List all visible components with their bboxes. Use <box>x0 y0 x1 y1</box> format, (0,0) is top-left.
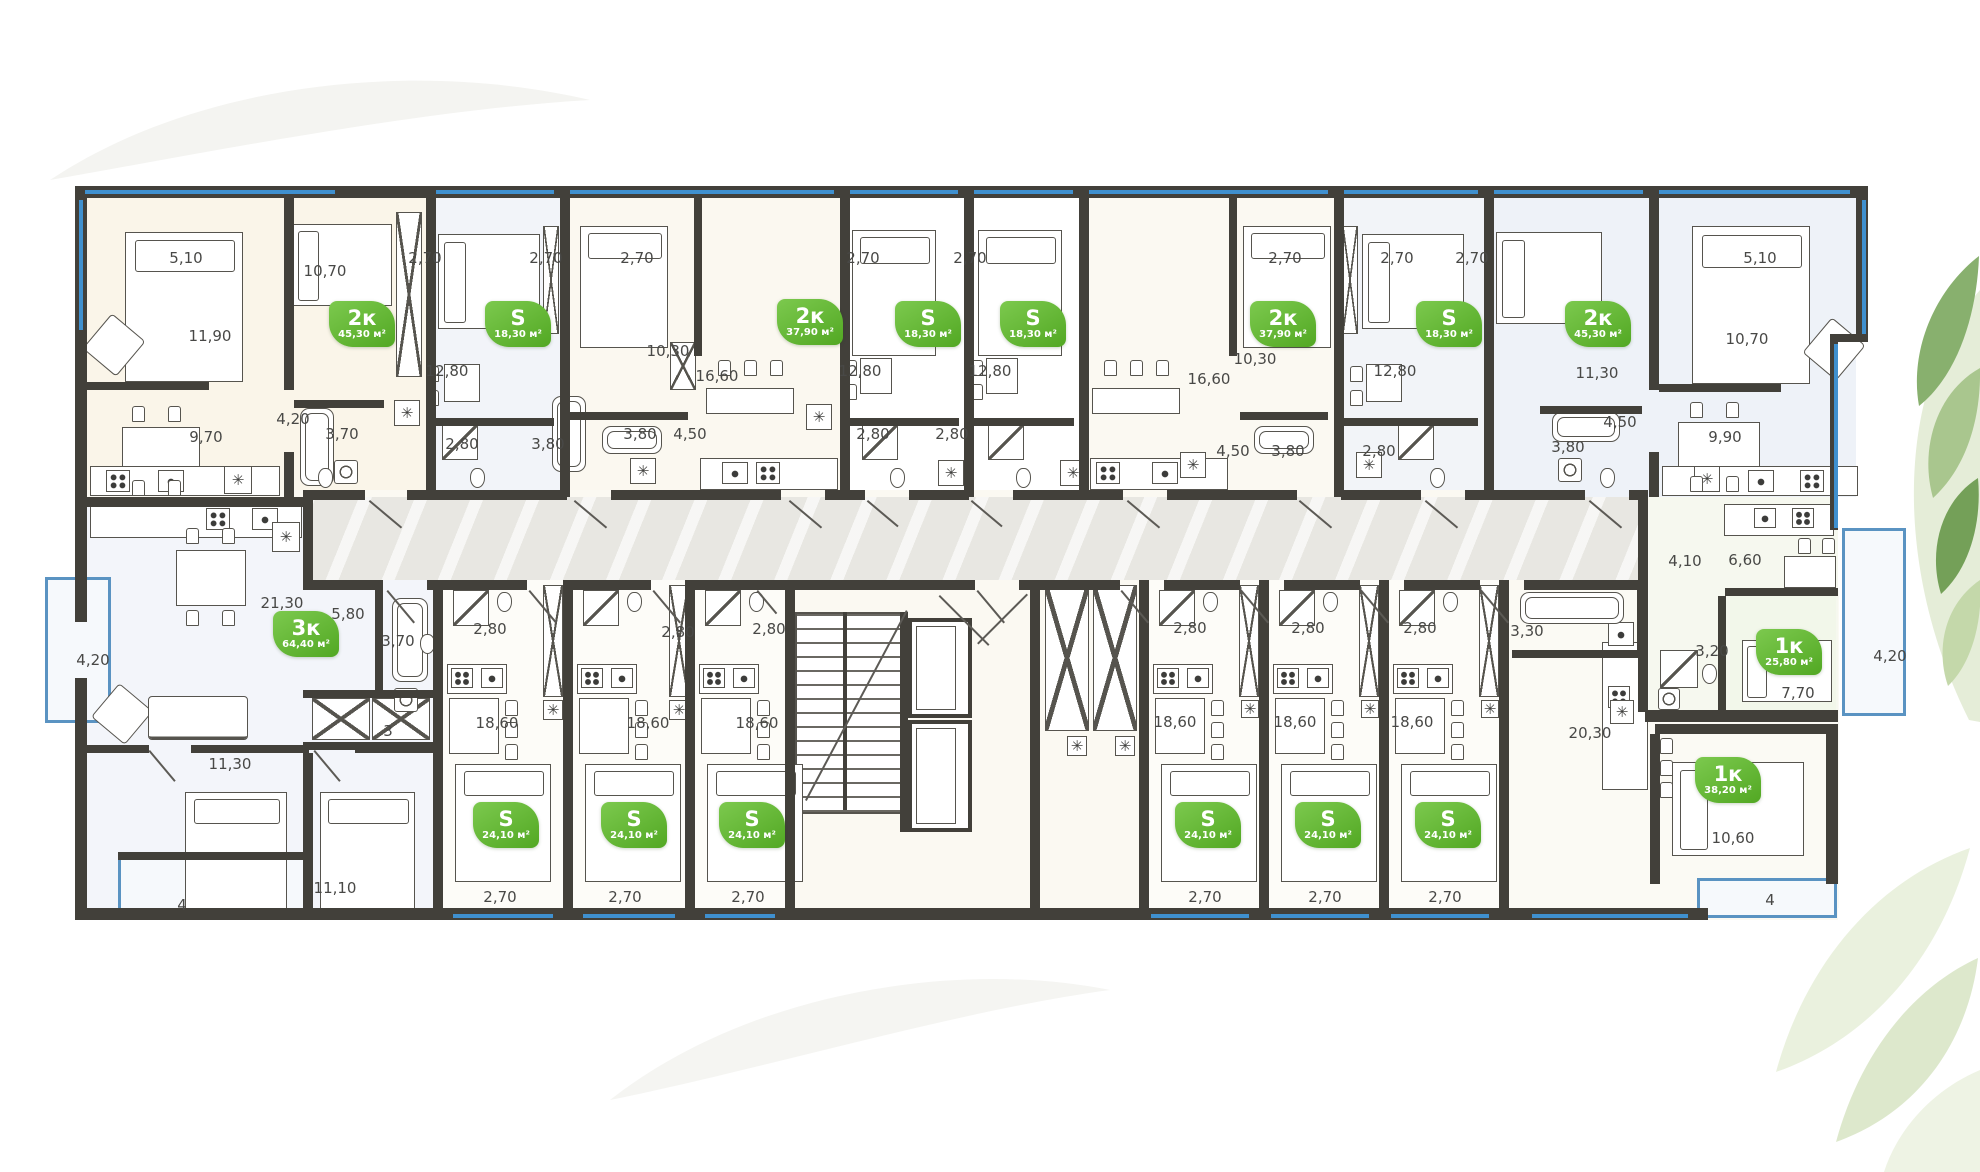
furniture-chair <box>1660 782 1673 798</box>
window-line <box>1151 914 1249 918</box>
furniture-chair <box>222 528 235 544</box>
dimension-label: 2,80 <box>1403 619 1436 637</box>
furniture-chair <box>1726 402 1739 418</box>
window-line <box>1089 190 1328 194</box>
wall-segment <box>1499 580 1509 920</box>
fridge-icon: ✳ <box>1481 700 1499 718</box>
toilet-icon <box>318 468 333 488</box>
sink-icon <box>1427 668 1449 688</box>
dimension-label: 11,90 <box>189 327 232 345</box>
fridge-icon: ✳ <box>1610 700 1634 724</box>
dimension-label: 18,60 <box>476 714 519 732</box>
sink-icon <box>1187 668 1209 688</box>
dimension-label: 2,80 <box>935 425 968 443</box>
fridge-icon: ✳ <box>1241 700 1259 718</box>
furniture-wardrobe-icon <box>312 698 370 740</box>
dimension-label: 9,90 <box>1708 428 1741 446</box>
apartment-badge[interactable]: 3к64,40 м² <box>273 611 339 657</box>
toilet-icon <box>1203 592 1218 612</box>
furniture-chair <box>1690 402 1703 418</box>
badge-area: 24,10 м² <box>1295 830 1361 841</box>
furniture-chair <box>1350 390 1363 406</box>
wall-segment <box>785 580 795 920</box>
dimension-label: 20,30 <box>1569 724 1612 742</box>
badge-area: 45,30 м² <box>1565 329 1631 340</box>
window-line <box>850 190 958 194</box>
dimension-label: 2,70 <box>408 249 441 267</box>
window-line <box>974 190 1073 194</box>
dimension-label: 4,50 <box>673 425 706 443</box>
badge-type: 2к <box>777 306 843 326</box>
sink-icon <box>611 668 633 688</box>
furniture-chair <box>1660 738 1673 754</box>
stove-icon <box>451 668 473 688</box>
window-line <box>1834 344 1838 528</box>
apartment-badge[interactable]: S24,10 м² <box>1415 802 1481 848</box>
dimension-label: 18,60 <box>627 714 670 732</box>
dimension-label: 2,70 <box>1455 249 1488 267</box>
wall-segment <box>118 852 310 860</box>
badge-type: S <box>601 809 667 829</box>
wall-segment <box>1079 198 1089 497</box>
toilet-icon <box>1016 468 1031 488</box>
wall-segment <box>1725 588 1838 596</box>
wall-segment <box>1650 734 1660 884</box>
dimension-label: 12,80 <box>969 362 1012 380</box>
dimension-label: 3,80 <box>1271 442 1304 460</box>
badge-type: 2к <box>1565 308 1631 328</box>
toilet-icon <box>497 592 512 612</box>
dimension-label: 3,30 <box>1510 622 1543 640</box>
wall-segment <box>964 198 974 497</box>
wall-segment <box>1240 412 1328 420</box>
plant-decoration-icon <box>1841 250 1980 734</box>
window-line <box>1494 190 1643 194</box>
badge-area: 18,30 м² <box>1416 329 1482 340</box>
furniture-chair <box>1660 760 1673 776</box>
window-line <box>453 914 553 918</box>
dimension-label: 2,70 <box>953 249 986 267</box>
dimension-label: 18,60 <box>736 714 779 732</box>
wall-segment <box>1645 710 1838 722</box>
stair-stringer <box>843 612 847 810</box>
window-line <box>1271 914 1369 918</box>
wall-segment <box>825 490 865 500</box>
dimension-label: 2,70 <box>731 888 764 906</box>
shower-icon <box>1398 424 1434 460</box>
stove-icon <box>106 470 130 492</box>
elevator-shaft <box>908 720 972 832</box>
dimension-label: 3,70 <box>325 425 358 443</box>
shower-icon <box>705 590 741 626</box>
wall-segment <box>1637 588 1645 658</box>
toilet-icon <box>1323 592 1338 612</box>
furniture-chair <box>186 528 199 544</box>
sink-icon <box>733 668 755 688</box>
floor-plan: ✳✳✳✳✳✳✳✳✳✳✳✳✳✳✳✳✳✳5,102,702,702,702,702,… <box>0 0 1980 1172</box>
badge-type: S <box>1415 809 1481 829</box>
apartment-badge[interactable]: S18,30 м² <box>1416 301 1482 347</box>
furniture-chair <box>1211 722 1224 738</box>
furniture-chair <box>757 744 770 760</box>
stove-icon <box>1397 668 1419 688</box>
shower-icon <box>988 424 1024 460</box>
dimension-label: 3,70 <box>381 632 414 650</box>
dimension-label: 2,70 <box>608 888 641 906</box>
stove-icon <box>1800 470 1824 492</box>
dimension-label: 11,10 <box>314 879 357 897</box>
furniture-shaft-icon <box>1045 585 1089 731</box>
dimension-label: 2,70 <box>1308 888 1341 906</box>
dimension-label: 16,60 <box>1188 370 1231 388</box>
apartment-badge[interactable]: S24,10 м² <box>719 802 785 848</box>
wall-segment <box>1512 650 1645 658</box>
sink-icon <box>1152 462 1178 484</box>
sink-icon <box>722 462 748 484</box>
wall-segment <box>1229 198 1237 356</box>
furniture-chair <box>186 610 199 626</box>
wall-segment <box>694 198 702 356</box>
badge-area: 24,10 м² <box>1415 830 1481 841</box>
furniture-chair <box>132 406 145 422</box>
wall-segment <box>1649 452 1659 497</box>
fridge-icon: ✳ <box>1115 736 1135 756</box>
wall-segment <box>563 580 573 920</box>
furniture-table <box>1784 556 1836 588</box>
badge-area: 64,40 м² <box>273 639 339 650</box>
window-line <box>1344 190 1478 194</box>
wall-segment <box>1344 418 1478 426</box>
furniture-chair <box>1690 476 1703 492</box>
badge-type: S <box>719 809 785 829</box>
wall-segment <box>87 382 209 390</box>
furniture-chair <box>168 480 181 496</box>
badge-area: 37,90 м² <box>1250 329 1316 340</box>
toilet-icon <box>470 468 485 488</box>
dimension-label: 2,70 <box>1380 249 1413 267</box>
dimension-label: 3 <box>383 722 393 740</box>
wall-segment <box>1284 580 1360 590</box>
wall-segment <box>75 510 87 622</box>
badge-area: 25,80 м² <box>1756 657 1822 668</box>
wall-segment <box>1164 580 1240 590</box>
stove-icon <box>206 508 230 530</box>
corridor <box>303 497 1648 580</box>
plant-decoration-icon <box>600 950 1120 1110</box>
badge-area: 24,10 м² <box>473 830 539 841</box>
fridge-icon: ✳ <box>224 466 252 494</box>
fridge-icon: ✳ <box>543 700 563 720</box>
furniture-sofa <box>148 696 248 740</box>
dimension-label: 2,80 <box>1173 619 1206 637</box>
dimension-label: 18,60 <box>1154 713 1197 731</box>
toilet-icon <box>1600 468 1615 488</box>
furniture-chair <box>1331 744 1344 760</box>
fridge-icon: ✳ <box>1067 736 1087 756</box>
bathtub-icon <box>1520 592 1624 624</box>
stove-icon <box>1157 668 1179 688</box>
badge-area: 38,20 м² <box>1695 785 1761 796</box>
dimension-label: 4,10 <box>1668 552 1701 570</box>
wall-segment <box>1655 724 1827 734</box>
dimension-label: 4,20 <box>76 651 109 669</box>
furniture-chair <box>744 360 757 376</box>
furniture-chair <box>1451 722 1464 738</box>
badge-type: 2к <box>329 308 395 328</box>
furniture-chair <box>635 744 648 760</box>
wall-segment <box>1030 580 1040 920</box>
wall-segment <box>900 612 908 832</box>
furniture-chair <box>1451 744 1464 760</box>
apartment-badge[interactable]: S18,30 м² <box>895 301 961 347</box>
furniture-chair <box>505 744 518 760</box>
dimension-label: 11,30 <box>1576 364 1619 382</box>
washer-icon <box>334 460 358 484</box>
dimension-label: 2,80 <box>1362 442 1395 460</box>
washer-icon <box>1558 458 1582 482</box>
toilet-icon <box>890 468 905 488</box>
sink-icon <box>1754 508 1776 528</box>
dimension-label: 18,60 <box>1274 713 1317 731</box>
furniture-table <box>1092 388 1180 414</box>
sink-icon <box>1307 668 1329 688</box>
elevator-shaft <box>908 618 972 718</box>
furniture-chair <box>1211 744 1224 760</box>
wall-segment <box>909 490 969 500</box>
dimension-label: 10,70 <box>1726 330 1769 348</box>
wall-segment <box>1013 490 1123 500</box>
badge-type: S <box>485 308 551 328</box>
furniture-wardrobe-icon <box>1342 226 1358 334</box>
badge-area: 18,30 м² <box>485 329 551 340</box>
wall-segment <box>571 580 651 590</box>
apartment-badge[interactable]: 2к45,30 м² <box>329 301 395 347</box>
badge-type: 2к <box>1250 308 1316 328</box>
badge-type: S <box>1000 308 1066 328</box>
badge-type: 1к <box>1695 764 1761 784</box>
apartment-badge[interactable]: 1к25,80 м² <box>1756 629 1822 675</box>
dimension-label: 5,10 <box>169 249 202 267</box>
wall-segment <box>1139 580 1149 920</box>
dimension-label: 2,80 <box>1291 619 1324 637</box>
dimension-label: 2,70 <box>483 888 516 906</box>
sink-icon <box>481 668 503 688</box>
furniture-chair <box>1211 700 1224 716</box>
wall-segment <box>407 490 567 500</box>
stove-icon <box>581 668 603 688</box>
fridge-icon: ✳ <box>272 522 300 552</box>
window-line <box>85 190 335 194</box>
shower-icon <box>583 590 619 626</box>
badge-area: 18,30 м² <box>895 329 961 340</box>
window-line <box>436 190 554 194</box>
fridge-icon: ✳ <box>630 458 656 484</box>
furniture-chair <box>1350 366 1363 382</box>
furniture-table <box>579 698 629 754</box>
wall-segment <box>294 400 384 408</box>
dimension-label: 3,20 <box>1695 642 1728 660</box>
badge-area: 45,30 м² <box>329 329 395 340</box>
wall-segment <box>436 418 554 426</box>
dimension-label: 9,70 <box>189 428 222 446</box>
dimension-label: 4,20 <box>276 410 309 428</box>
furniture-chair <box>1331 722 1344 738</box>
wall-segment <box>840 198 850 497</box>
sink-icon <box>1748 470 1774 492</box>
washer-icon <box>1658 688 1680 710</box>
furniture-table <box>176 550 246 606</box>
wall-segment <box>87 497 303 507</box>
wall-segment <box>75 908 435 920</box>
toilet-icon <box>1443 592 1458 612</box>
dimension-label: 10,30 <box>647 342 690 360</box>
dimension-label: 2,70 <box>1188 888 1221 906</box>
dimension-label: 2,70 <box>1428 888 1461 906</box>
wall-segment <box>755 580 785 590</box>
dimension-label: 2,80 <box>473 620 506 638</box>
apartment-badge[interactable]: S24,10 м² <box>473 802 539 848</box>
dimension-label: 2,80 <box>445 435 478 453</box>
apartment-badge[interactable]: 2к37,90 м² <box>777 299 843 345</box>
dimension-label: 12,80 <box>1374 362 1417 380</box>
dimension-label: 2,80 <box>752 620 785 638</box>
wall-segment <box>974 418 1074 426</box>
wall-segment <box>87 745 149 753</box>
wall-segment <box>1259 580 1269 920</box>
wall-segment <box>1465 490 1585 500</box>
dimension-label: 12,80 <box>839 362 882 380</box>
badge-type: S <box>473 809 539 829</box>
toilet-icon <box>1430 468 1445 488</box>
dimension-label: 10,70 <box>304 262 347 280</box>
sink-icon <box>1608 622 1634 646</box>
furniture-chair <box>1451 700 1464 716</box>
dimension-label: 3,80 <box>531 435 564 453</box>
dimension-label: 4 <box>177 896 187 914</box>
furniture-chair <box>168 406 181 422</box>
wall-segment <box>1649 198 1659 390</box>
dimension-label: 4,50 <box>1603 413 1636 431</box>
wall-segment <box>1524 580 1638 590</box>
kitchen-counter <box>1724 504 1834 536</box>
fridge-icon: ✳ <box>938 460 964 486</box>
furniture-wardrobe-icon <box>396 212 422 377</box>
stove-icon <box>1096 462 1120 484</box>
furniture-chair <box>1156 360 1169 376</box>
badge-type: S <box>895 308 961 328</box>
furniture-chair <box>1104 360 1117 376</box>
wall-segment <box>303 580 383 590</box>
furniture-bed <box>580 226 668 348</box>
dimension-label: 16,60 <box>696 367 739 385</box>
plant-decoration-icon <box>1718 840 1980 1172</box>
apartment-badge[interactable]: 2к45,30 м² <box>1565 301 1631 347</box>
wall-segment <box>1404 580 1480 590</box>
wall-segment <box>1167 490 1297 500</box>
window-line <box>583 914 675 918</box>
furniture-shaft-icon <box>1093 585 1137 731</box>
wall-segment <box>1379 580 1389 920</box>
dimension-label: 6,60 <box>1728 551 1761 569</box>
apartment-badge[interactable]: 2к37,90 м² <box>1250 301 1316 347</box>
furniture-chair <box>222 610 235 626</box>
badge-area: 18,30 м² <box>1000 329 1066 340</box>
furniture-chair <box>1130 360 1143 376</box>
dimension-label: 2,70 <box>1268 249 1301 267</box>
apartment-badge[interactable]: 1к38,20 м² <box>1695 757 1761 803</box>
window-line <box>1532 914 1688 918</box>
dimension-label: 2,70 <box>620 249 653 267</box>
fridge-icon: ✳ <box>1180 452 1206 478</box>
fridge-icon: ✳ <box>1361 700 1379 718</box>
wall-segment <box>1659 384 1781 392</box>
wall-segment <box>426 198 436 497</box>
stove-icon <box>756 462 780 484</box>
furniture-chair <box>1331 700 1344 716</box>
wall-segment <box>1484 198 1494 497</box>
furniture-chair <box>132 480 145 496</box>
apartment-badge[interactable]: S18,30 м² <box>485 301 551 347</box>
badge-area: 24,10 м² <box>601 830 667 841</box>
dimension-label: 4,50 <box>1216 442 1249 460</box>
wall-segment <box>570 412 688 420</box>
wall-segment <box>1040 580 1120 590</box>
dimension-label: 7,70 <box>1781 684 1814 702</box>
fridge-icon: ✳ <box>806 404 832 430</box>
stove-icon <box>703 668 725 688</box>
wall-segment <box>785 580 975 590</box>
badge-type: S <box>1416 308 1482 328</box>
window-line <box>570 190 834 194</box>
badge-type: 1к <box>1756 636 1822 656</box>
dimension-label: 3,80 <box>623 425 656 443</box>
wall-segment <box>303 753 313 920</box>
apartment-badge[interactable]: S24,10 м² <box>1175 802 1241 848</box>
stove-icon <box>1792 508 1814 528</box>
plant-decoration-icon <box>40 40 600 190</box>
badge-area: 24,10 м² <box>719 830 785 841</box>
furniture-chair <box>1726 476 1739 492</box>
wall-segment <box>611 490 781 500</box>
dimension-label: 10,30 <box>1234 350 1277 368</box>
shower-icon <box>1660 650 1698 688</box>
toilet-icon <box>627 592 642 612</box>
dimension-label: 12,80 <box>426 362 469 380</box>
toilet-icon <box>1702 664 1717 684</box>
badge-type: S <box>1175 809 1241 829</box>
wall-segment <box>1334 198 1344 497</box>
dimension-label: 18,60 <box>1391 713 1434 731</box>
wall-segment <box>303 690 443 698</box>
dimension-label: 2,70 <box>846 249 879 267</box>
window-line <box>1659 190 1850 194</box>
furniture-shaft-icon <box>543 585 563 697</box>
wall-segment <box>284 198 294 390</box>
wall-segment <box>1341 490 1421 500</box>
apartment-badge[interactable]: S18,30 м² <box>1000 301 1066 347</box>
dimension-label: 2,80 <box>856 425 889 443</box>
stove-icon <box>1277 668 1299 688</box>
wall-segment <box>191 745 309 753</box>
apartment-badge[interactable]: S24,10 м² <box>1295 802 1361 848</box>
fridge-icon: ✳ <box>394 400 420 426</box>
window-line <box>79 200 83 330</box>
furniture-chair <box>1822 538 1835 554</box>
badge-area: 37,90 м² <box>777 327 843 338</box>
apartment-badge[interactable]: S24,10 м² <box>601 802 667 848</box>
furniture-chair <box>1798 538 1811 554</box>
furniture-chair <box>770 360 783 376</box>
